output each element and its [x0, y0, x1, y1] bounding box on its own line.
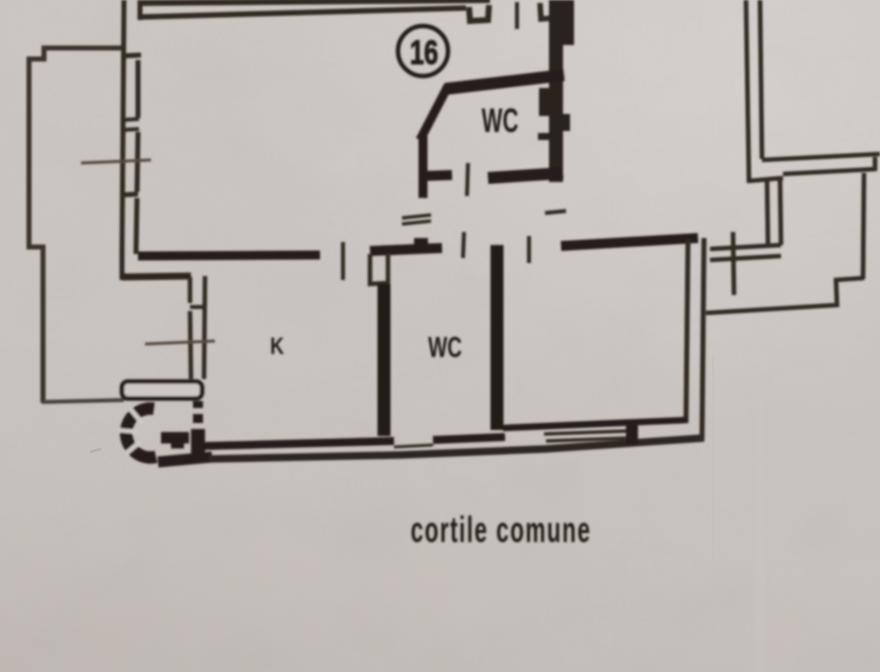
svg-text:cortile comune: cortile comune [411, 511, 592, 550]
svg-text:WC: WC [482, 102, 519, 140]
svg-text:K: K [270, 332, 284, 360]
svg-text:16: 16 [410, 35, 438, 72]
svg-text:WC: WC [428, 332, 462, 364]
